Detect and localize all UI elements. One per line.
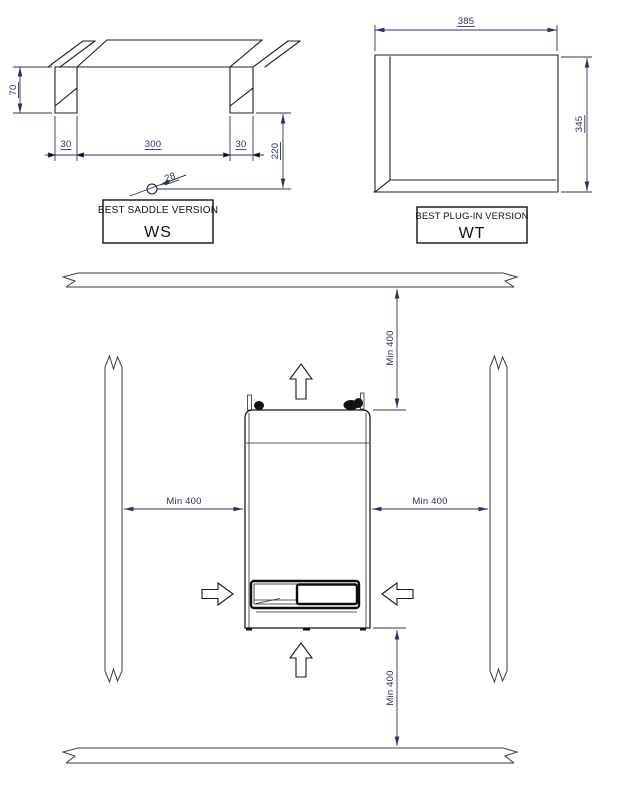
wt-label-title: BEST PLUG-IN VERSION bbox=[415, 211, 528, 222]
dim-right-tab-label: 30 bbox=[236, 139, 247, 150]
min400-left-label: Min 400 bbox=[166, 496, 201, 507]
ceiling-bar bbox=[63, 273, 517, 287]
wt-label-code: WT bbox=[459, 225, 486, 242]
appliance-unit bbox=[245, 393, 370, 631]
airflow-arrow-left bbox=[382, 583, 413, 605]
technical-drawing-canvas: 70 30 300 30 220 28 bbox=[0, 0, 624, 785]
plugin-tray-outline bbox=[374, 55, 558, 192]
airflow-arrow-up-top bbox=[290, 364, 312, 399]
ws-label-box: BEST SADDLE VERSION WS bbox=[98, 200, 218, 243]
dim-220: 220 bbox=[256, 113, 291, 188]
wt-plugin-drawing: 385 345 BEST PLUG-IN VERSION WT bbox=[374, 16, 592, 243]
dim-min400-right: Min 400 bbox=[372, 496, 488, 509]
arrowhead bbox=[253, 153, 260, 157]
airflow-arrow-up-bottom bbox=[290, 643, 312, 677]
ws-saddle-drawing: 70 30 300 30 220 28 bbox=[8, 40, 300, 243]
dim-345-label: 345 bbox=[574, 116, 585, 132]
dim-220-label: 220 bbox=[270, 143, 281, 159]
installation-drawing-page: 70 30 300 30 220 28 bbox=[0, 0, 624, 785]
unit-foot-right bbox=[360, 628, 366, 631]
saddle-right-leg bbox=[230, 67, 253, 113]
dim-70-label: 70 bbox=[8, 85, 19, 96]
min400-top-label: Min 400 bbox=[385, 330, 396, 365]
dim-385: 385 bbox=[375, 16, 557, 51]
min400-bottom-label: Min 400 bbox=[385, 670, 396, 705]
unit-foot-left bbox=[246, 628, 252, 631]
saddle-top-plate bbox=[77, 40, 262, 67]
saddle-right-tab bbox=[253, 41, 300, 67]
clearance-diagram: Min 400 Min 400 Min 400 Min 400 bbox=[63, 273, 517, 763]
dim-span-label: 300 bbox=[145, 139, 161, 150]
dim-min400-left: Min 400 bbox=[124, 496, 243, 509]
dim-min400-top: Min 400 bbox=[373, 289, 406, 410]
dim-345: 345 bbox=[561, 57, 592, 192]
floor-bar bbox=[63, 748, 517, 763]
dim-385-extensions bbox=[375, 25, 557, 51]
left-pipe-stub bbox=[248, 395, 252, 410]
dim-30-300-30: 30 300 30 bbox=[45, 116, 264, 161]
ws-label-title: BEST SADDLE VERSION bbox=[98, 205, 218, 216]
left-wall bbox=[105, 356, 122, 682]
arrowhead bbox=[77, 153, 84, 157]
airflow-arrow-right bbox=[202, 583, 233, 605]
saddle-left-leg bbox=[55, 67, 77, 113]
arrowhead bbox=[49, 153, 56, 157]
right-wall bbox=[490, 356, 507, 682]
dim-min400-bottom: Min 400 bbox=[373, 628, 406, 746]
panel-display bbox=[297, 585, 357, 605]
ws-label-code: WS bbox=[144, 224, 172, 241]
min400-right-label: Min 400 bbox=[412, 496, 447, 507]
dim-left-tab-label: 30 bbox=[61, 139, 72, 150]
arrowhead bbox=[224, 153, 231, 157]
unit-foot-center bbox=[303, 628, 310, 631]
dim-70: 70 bbox=[8, 67, 52, 113]
saddle-left-tab bbox=[48, 41, 95, 67]
dim-28: 28 bbox=[163, 171, 179, 185]
wt-label-box: BEST PLUG-IN VERSION WT bbox=[415, 207, 528, 243]
right-valve-knob-2 bbox=[354, 398, 363, 408]
left-valve-knob bbox=[254, 401, 264, 410]
dim-385-label: 385 bbox=[458, 16, 474, 27]
